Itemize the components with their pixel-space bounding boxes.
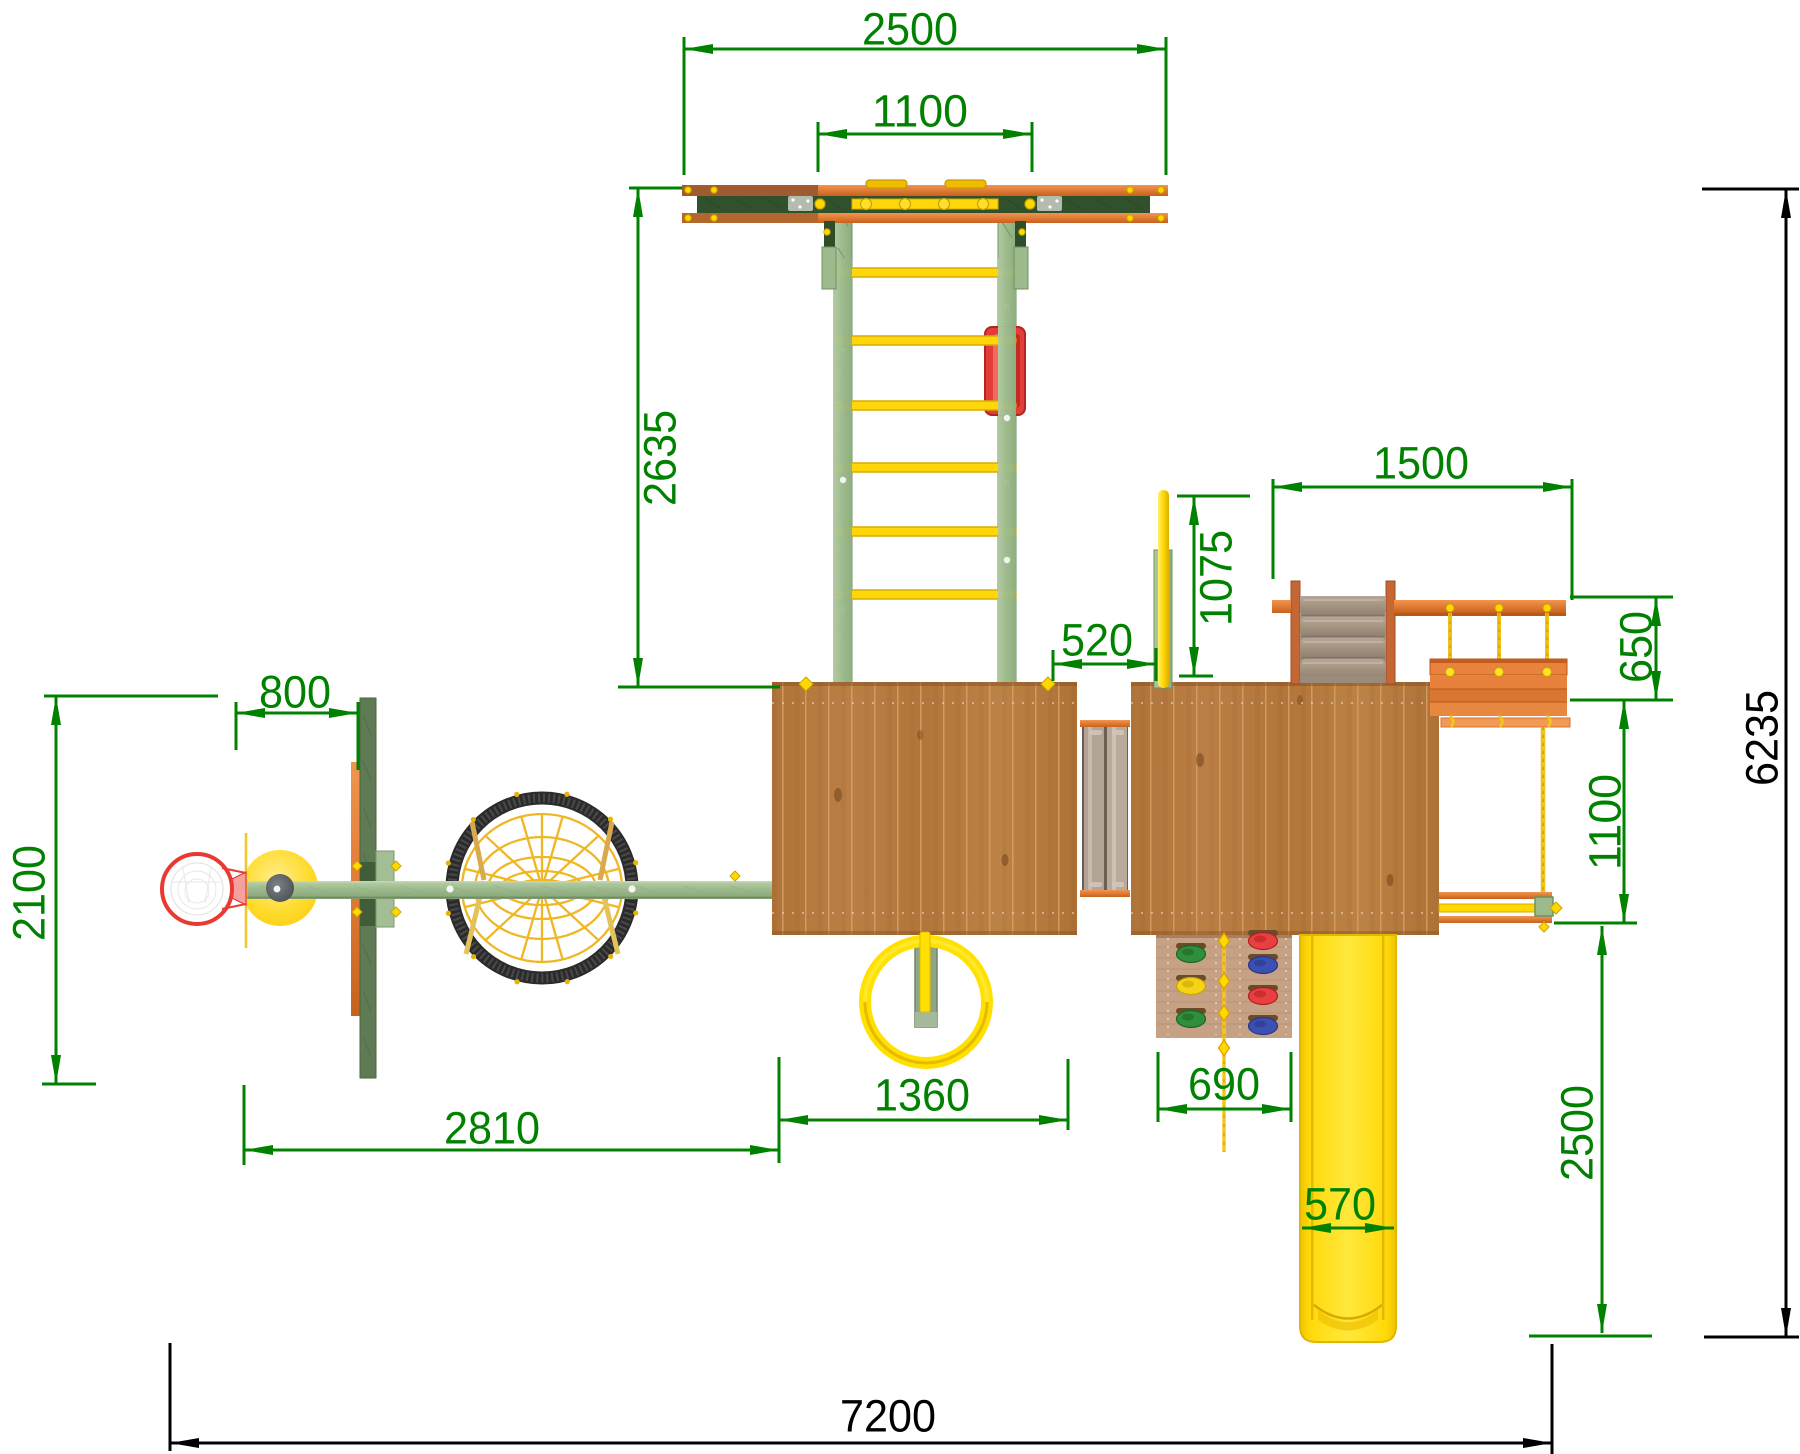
svg-text:2635: 2635 bbox=[635, 410, 686, 506]
svg-text:650: 650 bbox=[1611, 611, 1662, 683]
svg-text:690: 690 bbox=[1188, 1059, 1260, 1110]
svg-text:570: 570 bbox=[1304, 1179, 1376, 1230]
svg-text:1500: 1500 bbox=[1373, 438, 1469, 489]
svg-text:2500: 2500 bbox=[862, 4, 958, 55]
svg-text:2810: 2810 bbox=[444, 1103, 540, 1154]
svg-text:2100: 2100 bbox=[4, 845, 55, 941]
svg-text:800: 800 bbox=[259, 667, 331, 718]
svg-text:1100: 1100 bbox=[1580, 774, 1631, 870]
svg-text:520: 520 bbox=[1061, 615, 1133, 666]
svg-text:2500: 2500 bbox=[1552, 1085, 1603, 1181]
svg-text:1360: 1360 bbox=[874, 1070, 970, 1121]
svg-text:7200: 7200 bbox=[840, 1391, 936, 1442]
svg-text:1100: 1100 bbox=[872, 86, 968, 137]
svg-text:6235: 6235 bbox=[1737, 690, 1788, 786]
svg-text:1075: 1075 bbox=[1191, 530, 1242, 626]
